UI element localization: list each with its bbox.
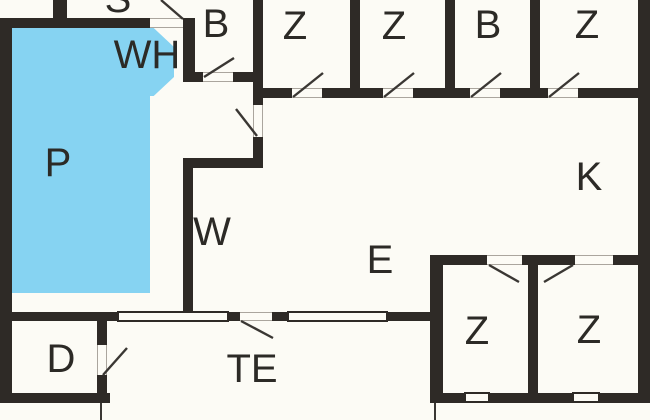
door-opening — [253, 105, 263, 137]
wall-segment — [613, 255, 650, 265]
wall-segment — [413, 88, 470, 98]
room-label-z1: Z — [283, 6, 307, 46]
wall-segment — [528, 265, 538, 393]
wall-segment — [445, 0, 455, 98]
floor-plan: SWHBZZBZPKWETEDZZ — [0, 0, 650, 420]
room-label-e: E — [367, 240, 394, 280]
wall-segment — [183, 72, 203, 82]
room-label-b2: B — [475, 5, 502, 45]
wall-segment — [0, 393, 110, 403]
wall-segment — [430, 255, 443, 403]
wall-segment — [183, 158, 193, 312]
wall-segment — [53, 0, 67, 28]
wall-segment — [522, 255, 575, 265]
door-opening — [470, 88, 500, 98]
room-label-s: S — [105, 0, 132, 19]
window — [117, 311, 229, 322]
room-label-z5: Z — [577, 310, 601, 350]
door-opening — [487, 255, 522, 265]
wall-segment — [97, 312, 107, 345]
wall-segment — [530, 0, 540, 98]
door-opening — [150, 18, 183, 28]
wall-segment — [322, 88, 383, 98]
wall-segment — [183, 158, 263, 168]
door-opening — [383, 88, 413, 98]
door-swing-line — [544, 265, 573, 282]
door-swing-line — [161, 0, 183, 19]
wall-segment — [0, 18, 12, 403]
room-label-w: W — [193, 212, 231, 252]
door-opening — [575, 255, 613, 265]
room-label-wh: WH — [114, 35, 181, 75]
door-opening — [292, 88, 322, 98]
window — [464, 392, 490, 403]
room-label-p: P — [45, 143, 72, 183]
window — [572, 392, 600, 403]
door-opening — [97, 345, 107, 375]
room-label-z3: Z — [575, 5, 599, 45]
room-label-d: D — [47, 339, 76, 379]
door-swing-line — [241, 321, 273, 338]
wall-segment — [229, 312, 240, 321]
room-label-z2: Z — [382, 6, 406, 46]
room-label-b1: B — [203, 4, 230, 44]
wall-segment — [272, 312, 287, 321]
wall-segment — [350, 0, 360, 98]
room-label-k: K — [576, 157, 603, 197]
wall-segment — [500, 88, 548, 98]
wall-segment — [430, 255, 487, 265]
door-opening — [240, 312, 272, 321]
door-opening — [203, 72, 233, 82]
window — [287, 311, 388, 322]
wall-segment — [638, 0, 650, 403]
door-opening — [548, 88, 578, 98]
wall-segment — [430, 393, 650, 403]
wall-segment — [253, 88, 292, 98]
room-label-z4: Z — [465, 311, 489, 351]
door-swing-line — [489, 265, 519, 282]
room-label-te: TE — [226, 349, 277, 389]
